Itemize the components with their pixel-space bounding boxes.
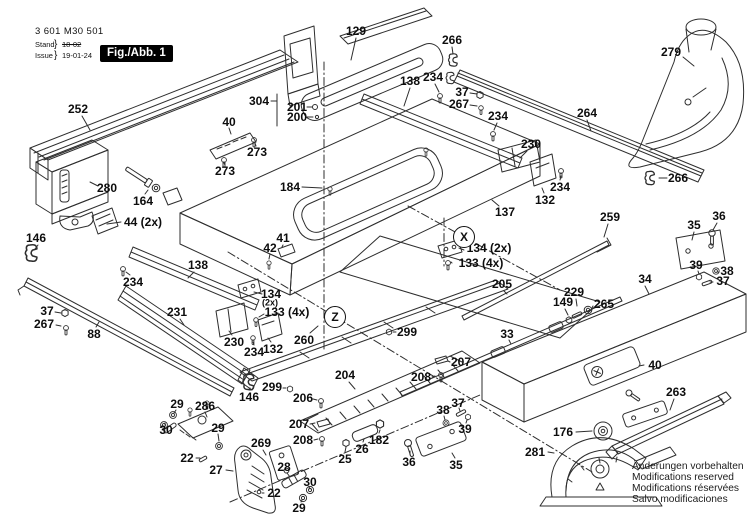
view-marker-x: X: [453, 226, 475, 248]
footer-note: Änderungen vorbehaltenModifications rese…: [632, 462, 744, 506]
part-clamp-44: [92, 208, 118, 234]
part-label-137: 137: [495, 206, 515, 218]
part-label-39: 39: [689, 259, 702, 271]
svg-text:BOSCH: BOSCH: [606, 359, 628, 373]
part-label-267: 267: [449, 98, 469, 110]
part-label-299: 299: [262, 381, 282, 393]
part-label-22: 22: [180, 452, 193, 464]
leader-line: [692, 232, 694, 240]
part-label-207: 207: [289, 418, 309, 430]
part-label-138: 138: [188, 259, 208, 271]
part-label-28: 28: [277, 461, 290, 473]
part-label-299: 299: [397, 326, 417, 338]
part-label-279: 279: [661, 46, 681, 58]
leader-line: [452, 47, 453, 54]
part-label-234: 234: [423, 71, 443, 83]
part-label-204: 204: [335, 369, 355, 381]
leader-line: [494, 123, 497, 130]
part-label-205: 205: [492, 278, 512, 290]
part-label-263: 263: [666, 386, 686, 398]
part-label-231: 231: [167, 306, 187, 318]
part-label-33: 33: [500, 328, 513, 340]
part-label-39: 39: [458, 423, 471, 435]
part-label-149: 149: [553, 296, 573, 308]
part-label-234: 234: [550, 181, 570, 193]
part-label-30: 30: [159, 424, 172, 436]
part-label-37: 37: [716, 275, 729, 287]
part-label-42: 42: [263, 242, 276, 254]
part-label-134-2x: 134 (2x): [467, 242, 512, 254]
part-bracket-134-left: [238, 279, 261, 298]
part-label-132: 132: [263, 343, 283, 355]
part-rail-263: [606, 392, 731, 459]
part-label-35: 35: [687, 219, 700, 231]
part-label-281: 281: [525, 446, 545, 458]
part-label-266: 266: [668, 172, 688, 184]
leader-line: [259, 314, 264, 317]
part-label-286: 286: [195, 400, 215, 412]
part-label-230: 230: [224, 336, 244, 348]
stand-value: 18-02: [62, 40, 81, 49]
part-clip-146: [25, 245, 37, 262]
leader-line: [565, 309, 568, 315]
part-label-27: 27: [209, 464, 222, 476]
part-label-133-4x: 133 (4x): [459, 257, 504, 269]
part-rail-264: [454, 70, 704, 182]
part-label-207: 207: [451, 356, 471, 368]
part-label-35: 35: [449, 459, 462, 471]
leader-line: [218, 434, 219, 441]
leader-line: [404, 88, 410, 106]
part-label-29: 29: [170, 398, 183, 410]
part-label-129: 129: [346, 25, 366, 37]
leader-line: [314, 439, 318, 440]
part-blade-guard-279: [629, 19, 744, 168]
leader-line: [470, 93, 477, 94]
document-part-number: 3 601 M30 501: [35, 26, 104, 37]
part-label-34: 34: [638, 273, 651, 285]
leader-line: [226, 470, 233, 471]
part-label-36: 36: [712, 210, 725, 222]
part-label-37: 37: [451, 397, 464, 409]
leader-line: [576, 431, 592, 432]
leader-line: [683, 57, 694, 66]
part-arm-27: [235, 446, 276, 513]
part-beam-34: BOSCH: [482, 272, 746, 422]
part-label-29: 29: [211, 422, 224, 434]
part-label-200: 200: [287, 111, 307, 123]
diagram-artwork: BOSCH: [0, 0, 750, 530]
part-label-280: 280: [97, 182, 117, 194]
leader-line: [604, 224, 608, 237]
part-clip-266-top: [449, 54, 458, 66]
issue-value: 19-01-24: [62, 51, 92, 60]
part-label-259: 259: [600, 211, 620, 223]
part-label-269: 269: [251, 437, 271, 449]
figure-label: Fig./Abb. 1: [100, 45, 173, 62]
part-label-26: 26: [355, 443, 368, 455]
part-label-22: 22: [267, 487, 280, 499]
part-label-88: 88: [87, 328, 100, 340]
issue-label: Issue: [35, 51, 54, 60]
leader-line: [470, 105, 477, 106]
leader-line: [435, 84, 439, 92]
part-label-176: 176: [553, 426, 573, 438]
leader-line: [313, 399, 317, 400]
part-insert-plate-129: [297, 8, 446, 124]
leader-line: [713, 223, 717, 230]
part-label-132: 132: [535, 194, 555, 206]
part-label-41: 41: [276, 232, 289, 244]
leader-line: [55, 312, 61, 313]
part-disc-176: [594, 390, 668, 440]
leader-line: [302, 187, 322, 188]
part-label-29: 29: [292, 502, 305, 514]
leader-line: [310, 326, 318, 333]
part-label-234: 234: [123, 276, 143, 288]
footer-note-line: Salvo modificaciones: [632, 495, 744, 506]
part-label-206: 206: [293, 392, 313, 404]
part-label-266: 266: [442, 34, 462, 46]
part-label-184: 184: [280, 181, 300, 193]
leader-line: [82, 116, 90, 130]
leader-line: [592, 306, 593, 308]
part-label-267: 267: [34, 318, 54, 330]
leader-line: [645, 286, 649, 294]
part-label-230: 230: [521, 138, 541, 150]
part-label-208: 208: [293, 434, 313, 446]
parts-diagram: BOSCH: [0, 0, 750, 530]
part-label-234: 234: [488, 110, 508, 122]
part-label-164: 164: [133, 195, 153, 207]
part-label-37: 37: [40, 305, 53, 317]
part-label-38: 38: [436, 404, 449, 416]
part-label-265: 265: [594, 298, 614, 310]
leader-line: [451, 262, 452, 263]
part-plate-230-left: [216, 303, 248, 337]
part-label-40: 40: [222, 116, 235, 128]
part-label-264: 264: [577, 107, 597, 119]
part-clip-266-right: [645, 171, 654, 184]
part-label-25: 25: [338, 453, 351, 465]
part-label-146: 146: [239, 391, 259, 403]
part-label-304: 304: [249, 95, 269, 107]
stand-label: Stand: [35, 40, 54, 49]
leader-line: [263, 450, 266, 455]
leader-line: [448, 361, 450, 362]
part-label-146: 146: [26, 232, 46, 244]
part-label-133-4x: 133 (4x): [265, 306, 310, 318]
part-rail-138-top: [360, 94, 522, 168]
part-label-138: 138: [400, 75, 420, 87]
part-label-182: 182: [369, 434, 389, 446]
leader-line: [349, 382, 355, 389]
leader-line: [56, 325, 61, 326]
view-marker-z: Z: [324, 306, 346, 328]
title-block: 3 601 M30 501 Stand } 18-02 Issue } 19-0…: [35, 26, 104, 59]
part-label-260: 260: [294, 334, 314, 346]
leader-line: [548, 452, 554, 453]
part-label-36: 36: [402, 456, 415, 468]
leader-line: [107, 222, 121, 224]
part-label-252: 252: [68, 103, 88, 115]
leader-line: [351, 38, 356, 60]
part-label-44-2x: 44 (2x): [124, 216, 162, 228]
brace-glyph: }: [54, 39, 62, 50]
leader-line: [282, 245, 283, 247]
part-label-273: 273: [215, 165, 235, 177]
part-label-30: 30: [303, 476, 316, 488]
part-label-234: 234: [244, 346, 264, 358]
leader-line: [670, 399, 674, 410]
part-rail-138-left: [129, 247, 259, 310]
part-label-40: 40: [648, 359, 661, 371]
part-label-208: 208: [411, 371, 431, 383]
leader-line: [576, 299, 577, 306]
part-clip-266-top2: [446, 72, 454, 83]
bosch-logo-plate: BOSCH: [583, 346, 641, 387]
part-label-273: 273: [247, 146, 267, 158]
leader-line: [310, 423, 315, 424]
brace-glyph: }: [54, 50, 62, 61]
